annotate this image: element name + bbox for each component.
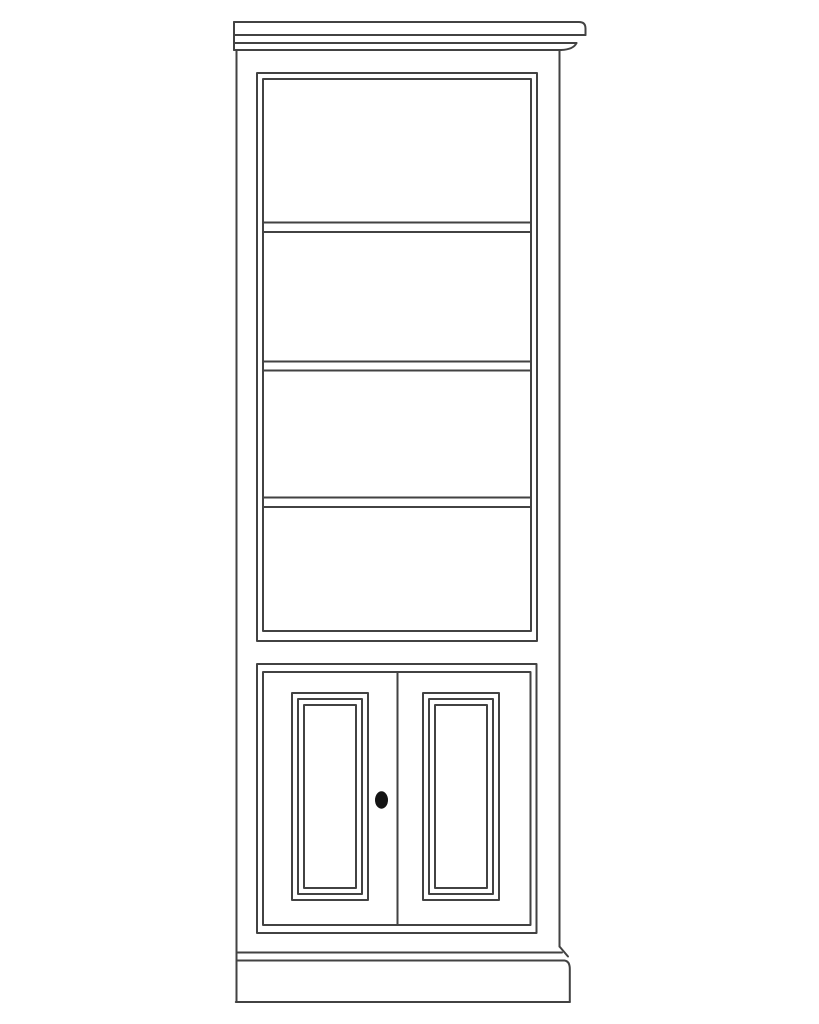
door-knob: [375, 791, 388, 809]
illustration-canvas: [0, 0, 819, 1024]
bookcase-line-drawing: [0, 0, 819, 1024]
drawing-background: [0, 0, 819, 1024]
